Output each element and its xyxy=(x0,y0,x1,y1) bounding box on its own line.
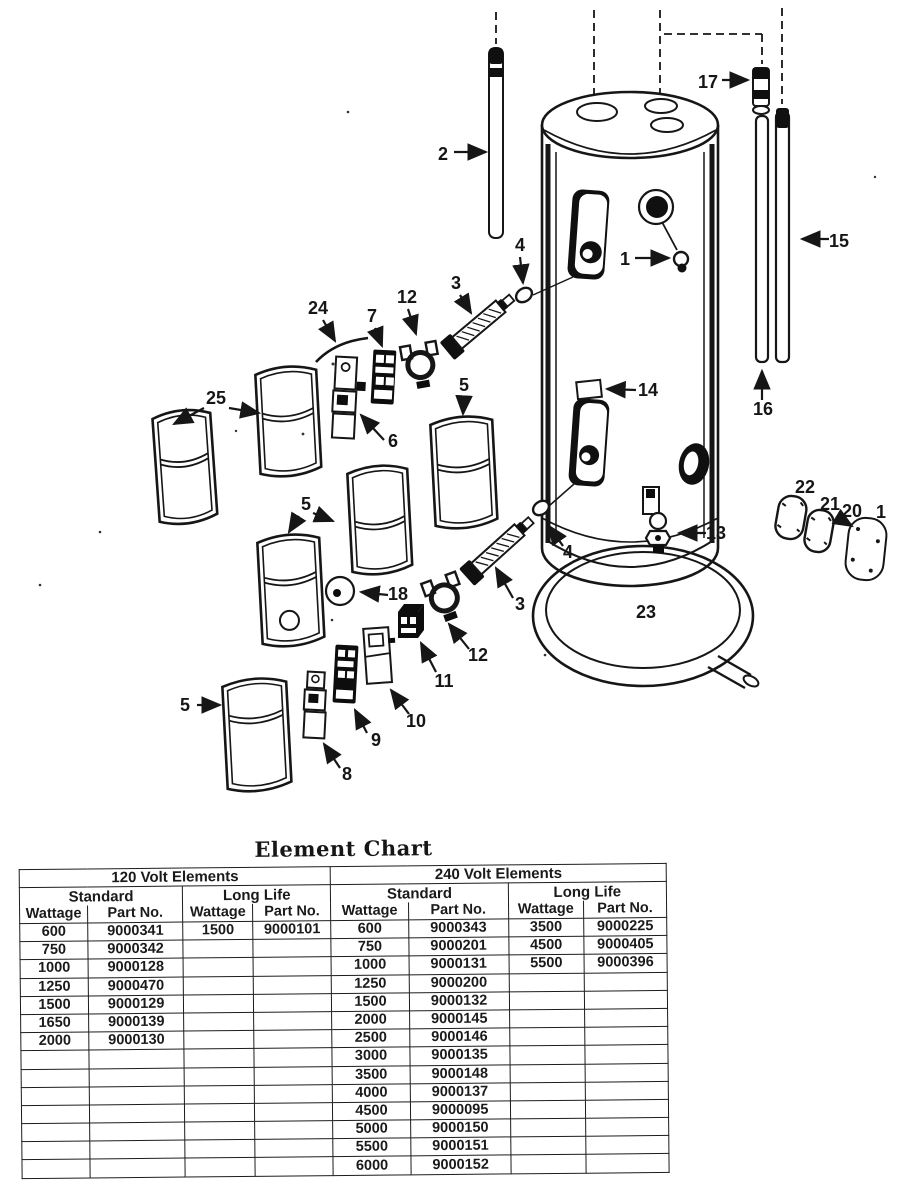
table-cell: 1650 xyxy=(21,1014,89,1033)
jacket-panel-5a xyxy=(430,415,498,529)
table-cell xyxy=(255,1102,333,1121)
subsection-long-life: Long Life xyxy=(508,881,666,901)
callout-5: 5 xyxy=(301,494,311,514)
table-cell: 750 xyxy=(20,941,88,960)
tank-top-hole xyxy=(651,118,683,132)
table-cell xyxy=(254,1048,332,1067)
table-cell: 6000 xyxy=(333,1156,410,1175)
table-cell: 9000151 xyxy=(410,1137,510,1156)
pipe-nipple xyxy=(753,68,769,114)
table-cell: 2500 xyxy=(332,1029,409,1048)
table-cell xyxy=(510,1136,585,1155)
thermostat-bracket-upper xyxy=(331,356,367,439)
table-cell xyxy=(90,1158,185,1177)
callout-12: 12 xyxy=(397,287,417,307)
limit-switch xyxy=(398,604,424,638)
table-cell xyxy=(184,1030,254,1049)
table-cell xyxy=(510,1082,585,1101)
table-cell xyxy=(254,975,332,994)
table-cell xyxy=(185,1121,255,1140)
table-cell xyxy=(184,1049,254,1068)
table-cell xyxy=(585,1117,668,1136)
table-cell xyxy=(510,1046,585,1065)
table-cell xyxy=(509,973,584,992)
table-cell xyxy=(584,990,667,1009)
tank-top-hole xyxy=(645,99,677,113)
table-cell xyxy=(184,1067,254,1086)
table-cell: 9000470 xyxy=(88,977,183,996)
table-cell: 2000 xyxy=(21,1032,89,1051)
table-cell xyxy=(185,1103,255,1122)
table-cell xyxy=(184,1012,254,1031)
col-part-no: Part No. xyxy=(253,903,331,921)
callout-16: 16 xyxy=(753,399,773,419)
table-cell xyxy=(255,1157,333,1176)
table-cell: 9000148 xyxy=(410,1064,510,1083)
table-cell: 600 xyxy=(331,920,408,939)
callout-17: 17 xyxy=(698,72,718,92)
callout-21: 21 xyxy=(820,494,840,514)
table-cell: 5500 xyxy=(509,955,584,974)
table-cell xyxy=(585,1027,668,1046)
table-cell xyxy=(253,939,331,958)
subsection-long-life: Long Life xyxy=(183,885,331,905)
table-cell xyxy=(255,1121,333,1140)
table-cell xyxy=(183,958,253,977)
table-cell: 750 xyxy=(331,938,408,957)
table-cell: 1250 xyxy=(332,974,409,993)
element-chart-table: 120 Volt Elements 240 Volt Elements Stan… xyxy=(19,863,670,1179)
table-cell: 9000095 xyxy=(410,1101,510,1120)
callout-23: 23 xyxy=(636,602,656,622)
table-cell xyxy=(183,976,253,995)
table-cell: 9000201 xyxy=(408,937,508,956)
table-cell: 9000343 xyxy=(408,919,508,938)
element-chart-title: Element Chart xyxy=(18,833,668,864)
table-cell: 9000341 xyxy=(88,922,183,941)
table-cell xyxy=(184,994,254,1013)
table-cell: 9000145 xyxy=(409,1010,509,1029)
col-part-no: Part No. xyxy=(88,905,183,923)
subsection-standard: Standard xyxy=(19,886,182,906)
scanned-parts-page: 2 17 15 16 1 4 3 12 7 24 25 5 6 5 18 12 … xyxy=(0,0,908,1200)
anode-rod xyxy=(489,48,503,238)
jacket-panel-25b xyxy=(255,365,322,477)
table-cell: 4500 xyxy=(333,1102,410,1121)
element-gasket-upper xyxy=(513,285,534,305)
heating-element-upper xyxy=(440,289,519,361)
table-cell: 9000101 xyxy=(253,921,331,940)
callout-7: 7 xyxy=(367,306,377,326)
callout-5: 5 xyxy=(180,695,190,715)
upper-element-access-opening xyxy=(567,189,610,280)
callout-1: 1 xyxy=(620,249,630,269)
table-cell xyxy=(21,1050,89,1069)
table-cell xyxy=(585,1099,668,1118)
element-clamp-lower xyxy=(421,572,470,626)
table-cell: 4500 xyxy=(509,936,584,955)
table-cell: 3500 xyxy=(333,1065,410,1084)
callout-15: 15 xyxy=(829,231,849,251)
callout-9: 9 xyxy=(371,730,381,750)
table-cell xyxy=(254,1066,332,1085)
table-cell: 2000 xyxy=(332,1011,409,1030)
table-cell: 9000135 xyxy=(409,1046,509,1065)
table-cell: 9000396 xyxy=(584,954,667,973)
table-cell: 9000150 xyxy=(410,1119,510,1138)
thermostat-bracket-plate xyxy=(363,627,398,684)
table-cell xyxy=(21,1068,89,1087)
table-cell: 9000132 xyxy=(409,992,509,1011)
table-cell xyxy=(585,1063,668,1082)
table-cell xyxy=(509,1009,584,1028)
table-cell: 9000405 xyxy=(584,936,667,955)
callout-18: 18 xyxy=(388,584,408,604)
table-cell: 1000 xyxy=(20,959,88,978)
table-cell xyxy=(254,1012,332,1031)
table-cell: 600 xyxy=(20,923,88,942)
table-cell xyxy=(183,940,253,959)
callout-12: 12 xyxy=(468,645,488,665)
table-cell: 9000129 xyxy=(88,995,183,1014)
tank-body xyxy=(533,92,718,586)
table-cell: 9000225 xyxy=(583,917,666,936)
table-cell xyxy=(184,1085,254,1104)
callout-5: 5 xyxy=(459,375,469,395)
grommet-disc xyxy=(326,577,354,605)
table-cell xyxy=(254,1030,332,1049)
callout-4: 4 xyxy=(563,542,573,562)
table-cell: 1500 xyxy=(20,996,88,1015)
table-cell: 3500 xyxy=(508,918,583,937)
table-cell: 1500 xyxy=(332,993,409,1012)
table-cell xyxy=(185,1140,255,1159)
callout-3: 3 xyxy=(451,273,461,293)
jacket-panel-25a xyxy=(152,408,218,525)
table-cell: 9000200 xyxy=(409,973,509,992)
jacket-panel-5b xyxy=(347,464,413,575)
table-cell: 5000 xyxy=(333,1120,410,1139)
callout-11: 11 xyxy=(434,671,453,691)
table-cell: 5500 xyxy=(333,1138,410,1157)
table-cell xyxy=(584,972,667,991)
table-cell xyxy=(22,1159,90,1178)
jacket-panel-5d xyxy=(222,677,292,792)
table-cell xyxy=(586,1154,669,1173)
table-cell xyxy=(22,1141,90,1160)
table-cell: 1500 xyxy=(183,921,253,940)
table-cell: 9000152 xyxy=(411,1155,511,1174)
table-cell xyxy=(585,1081,668,1100)
table-cell: 1000 xyxy=(331,956,408,975)
callout-20: 20 xyxy=(842,501,862,521)
callout-24: 24 xyxy=(308,298,328,318)
callout-14: 14 xyxy=(638,380,658,400)
table-cell: 3000 xyxy=(332,1047,409,1066)
lower-element-access-opening xyxy=(568,398,610,487)
table-cell: 1250 xyxy=(20,978,88,997)
table-cell xyxy=(21,1087,89,1106)
callout-10: 10 xyxy=(406,711,426,731)
table-cell xyxy=(89,1086,184,1105)
table-cell xyxy=(509,1027,584,1046)
table-cell: 9000342 xyxy=(88,940,183,959)
callout-25: 25 xyxy=(206,388,226,408)
callout-2: 2 xyxy=(438,144,448,164)
table-cell: 9000139 xyxy=(89,1013,184,1032)
table-cell xyxy=(254,993,332,1012)
table-cell xyxy=(584,1008,667,1027)
col-part-no: Part No. xyxy=(408,901,508,919)
thermostat-lower xyxy=(332,644,358,703)
table-cell xyxy=(511,1155,586,1174)
table-cell xyxy=(90,1104,185,1123)
table-cell xyxy=(509,991,584,1010)
jacket-panel-5c xyxy=(257,533,325,647)
tank-top-hole xyxy=(577,103,617,121)
table-cell: 9000137 xyxy=(410,1083,510,1102)
table-cell: 9000130 xyxy=(89,1031,184,1050)
callout-6: 6 xyxy=(388,431,398,451)
table-cell xyxy=(89,1068,184,1087)
table-cell xyxy=(255,1084,333,1103)
table-cell xyxy=(585,1045,668,1064)
element-chart-body: 6009000341150090001016009000343350090002… xyxy=(20,917,669,1178)
dip-tubes xyxy=(756,108,789,362)
gasket-22 xyxy=(773,494,808,541)
element-chart: Element Chart 120 Volt Elements 240 Volt… xyxy=(18,833,671,1179)
col-wattage: Wattage xyxy=(20,905,88,923)
callout-8: 8 xyxy=(342,764,352,784)
table-cell: 4000 xyxy=(333,1084,410,1103)
rating-plate xyxy=(576,380,602,399)
table-cell: 9000131 xyxy=(409,955,509,974)
col-part-no: Part No. xyxy=(583,900,666,918)
table-cell xyxy=(90,1122,185,1141)
subsection-standard: Standard xyxy=(331,883,508,903)
table-cell xyxy=(185,1158,255,1177)
table-cell xyxy=(255,1139,333,1158)
table-cell xyxy=(89,1049,184,1068)
table-cell xyxy=(510,1064,585,1083)
water-heater-exploded-diagram: 2 17 15 16 1 4 3 12 7 24 25 5 6 5 18 12 … xyxy=(0,0,908,838)
table-cell xyxy=(586,1136,669,1155)
callout-4: 4 xyxy=(515,235,525,255)
table-cell xyxy=(510,1118,585,1137)
table-cell xyxy=(22,1123,90,1142)
col-wattage: Wattage xyxy=(183,904,253,922)
table-cell xyxy=(253,957,331,976)
gasket-21 xyxy=(803,508,836,554)
thermostat-bracket-lower xyxy=(302,671,327,738)
thermostat-upper xyxy=(371,349,397,404)
table-cell xyxy=(21,1105,89,1124)
table-cell: 9000128 xyxy=(88,958,183,977)
callout-1b: 1 xyxy=(876,502,886,522)
callout-3: 3 xyxy=(515,594,525,614)
table-cell: 9000146 xyxy=(409,1028,509,1047)
callout-22: 22 xyxy=(795,477,815,497)
col-wattage: Wattage xyxy=(508,901,583,919)
table-cell xyxy=(510,1100,585,1119)
table-cell xyxy=(90,1140,185,1159)
callout-13: 13 xyxy=(706,523,726,543)
element-clamp-upper xyxy=(400,341,443,391)
col-wattage: Wattage xyxy=(331,902,408,920)
